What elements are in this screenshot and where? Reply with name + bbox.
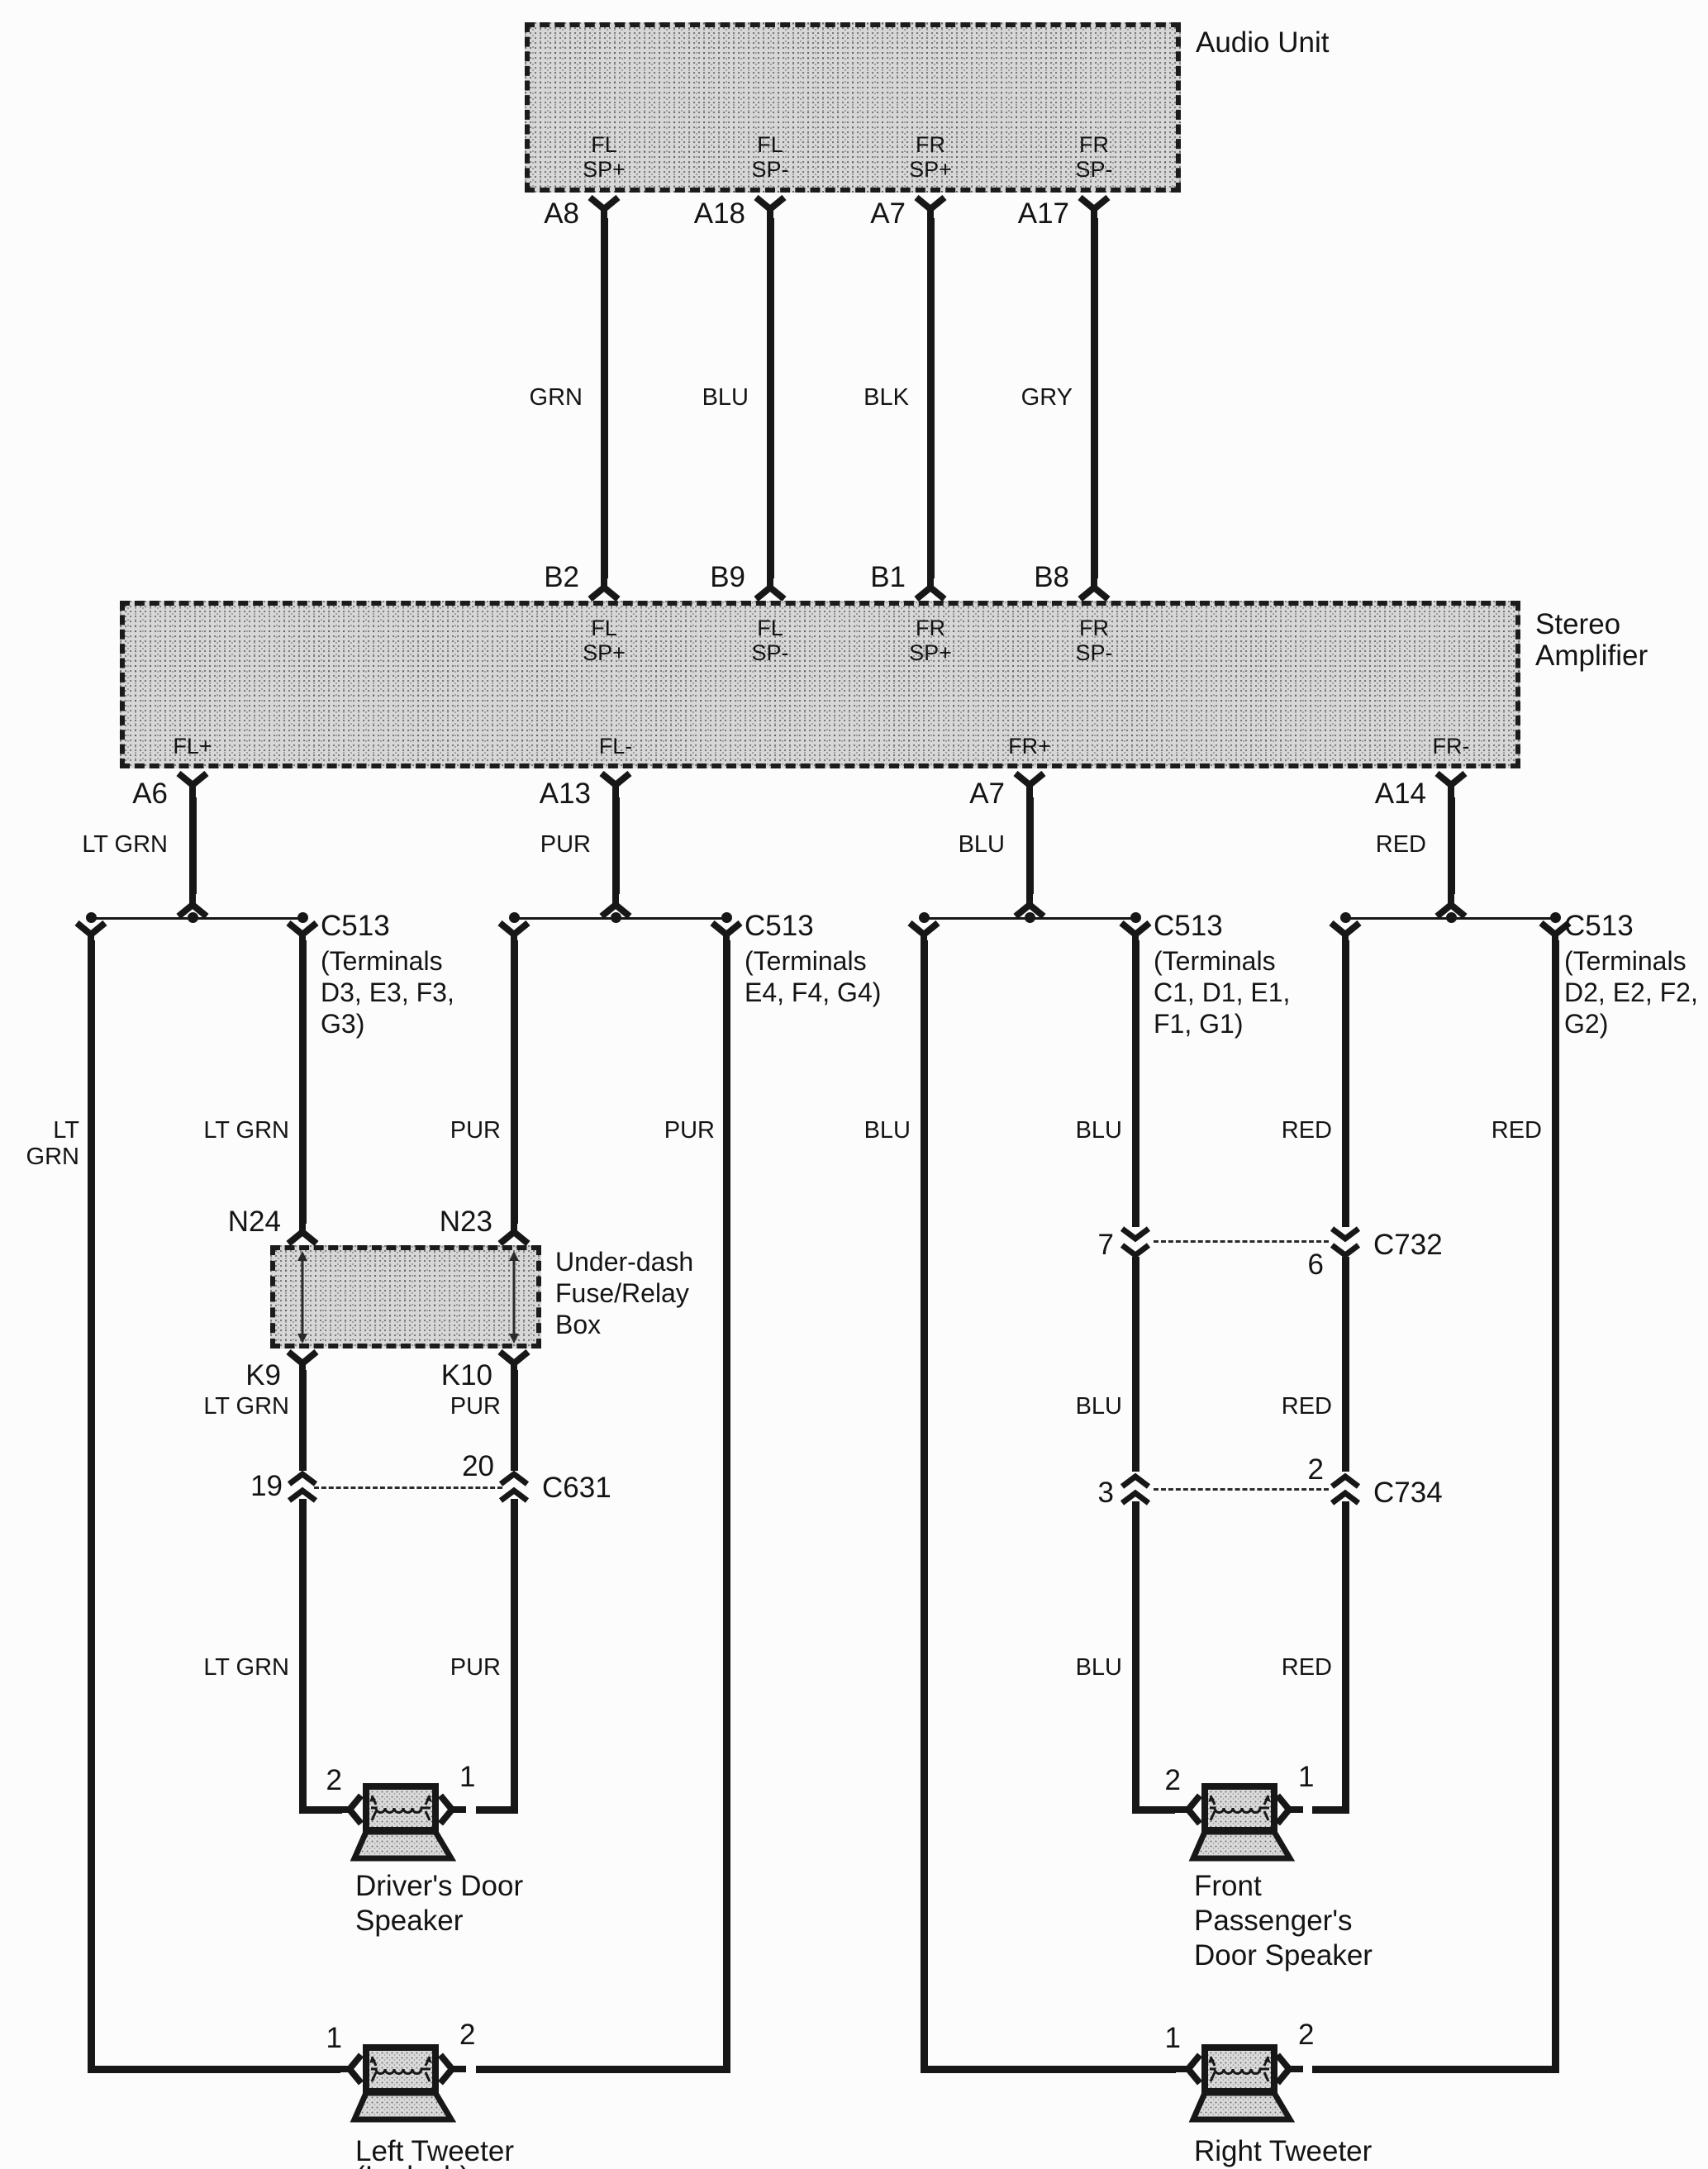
amp-output-pin-fr-plus: FR+ — [988, 734, 1071, 759]
wire-color-grn: GRN — [464, 384, 583, 411]
left-tweeter-pin-2: 2 — [459, 2019, 509, 2051]
wire-red — [1448, 797, 1455, 894]
audio-pin-label-fl-sp-plus: FL SP+ — [554, 132, 654, 182]
terminal-a18: A18 — [623, 198, 745, 230]
fuse-box-through-arrow-icon — [294, 1251, 311, 1344]
wiring-diagram: Audio Unit FL SP+ FL SP- FR SP+ FR SP- A… — [0, 0, 1708, 2169]
pin-fork-icon — [586, 573, 622, 602]
wire-pur-inner — [511, 1499, 518, 1814]
inline-connector-dashed-line — [314, 1486, 502, 1489]
wire-color-label: BLU — [1003, 1654, 1122, 1681]
terminal-n23: N23 — [370, 1206, 492, 1238]
terminal-b9: B9 — [623, 562, 745, 593]
terminal-a13: A13 — [469, 778, 591, 810]
inline-connector-chevron-icon — [1327, 1473, 1363, 1506]
speaker-icon — [1190, 1781, 1293, 1863]
wire-color-red: RED — [1294, 831, 1426, 858]
terminal-a6: A6 — [45, 778, 168, 810]
junction-dot — [1025, 912, 1035, 923]
connector-c513-name-3: C513 — [1154, 911, 1223, 942]
wire-color-blk: BLK — [790, 384, 909, 411]
wire-blu-inner — [1132, 1257, 1139, 1472]
audio-pin-label-fr-sp-minus: FR SP- — [1044, 132, 1144, 182]
terminal-a14: A14 — [1304, 778, 1426, 810]
fuse-box-through-arrow-icon — [506, 1251, 522, 1344]
connector-c513-name-4: C513 — [1564, 911, 1634, 942]
wire-lt-grn-inner — [299, 1370, 307, 1471]
pin-fork-icon — [1433, 771, 1469, 799]
junction-dot — [188, 912, 198, 923]
terminal-a17: A17 — [947, 198, 1069, 230]
wire-lt-grn — [189, 797, 197, 894]
inline-connector-chevron-icon — [1327, 1225, 1363, 1258]
right-tweeter-pin-2: 2 — [1298, 2019, 1348, 2051]
amp-output-pin-fl-plus: FL+ — [151, 734, 234, 759]
wire-blu-inner — [1132, 940, 1139, 1227]
wire-segment — [921, 2066, 1176, 2073]
inline-connector-chevron-icon — [496, 1471, 532, 1504]
wire-pur — [612, 797, 620, 894]
wire-blu — [767, 218, 774, 578]
wire-color-label: PUR — [382, 1117, 501, 1144]
wire-red-inner — [1342, 1257, 1349, 1472]
terminal-k10: K10 — [370, 1360, 492, 1391]
wire-red-inner — [1342, 940, 1349, 1227]
wire-color-label: BLU — [792, 1117, 911, 1144]
pin-fork-icon — [1011, 771, 1048, 799]
wire-color-pur: PUR — [459, 831, 591, 858]
passenger-speaker-pin-2: 2 — [1128, 1765, 1181, 1796]
stereo-amplifier-box — [120, 601, 1520, 768]
pin-fork-icon — [1076, 573, 1112, 602]
wire-color-gry: GRY — [954, 384, 1073, 411]
terminal-a7-amp: A7 — [883, 778, 1005, 810]
wire-color-blu: BLU — [873, 831, 1005, 858]
wire-color-label: LT GRN — [170, 1654, 289, 1681]
connector-c513-terminals-3: (Terminals C1, D1, E1, F1, G1) — [1154, 945, 1290, 1039]
amp-input-pin-label: FL SP+ — [554, 616, 654, 665]
terminal-n24: N24 — [159, 1206, 281, 1238]
wire-color-label: LT GRN — [0, 1117, 79, 1170]
speaker-icon — [351, 1781, 454, 1863]
inline-connector-chevron-icon — [1117, 1473, 1154, 1506]
right-tweeter-pin-1: 1 — [1128, 2023, 1181, 2054]
wire-segment — [1312, 1806, 1349, 1814]
pin-fork-icon — [174, 771, 211, 799]
pin-fork-icon — [496, 1218, 532, 1246]
wire-color-label: LT GRN — [170, 1117, 289, 1144]
pin-fork-icon — [752, 573, 788, 602]
wire-segment — [88, 2066, 340, 2073]
pin-fork-icon — [912, 573, 949, 602]
c732-pin-7: 7 — [1006, 1230, 1114, 1261]
terminal-a7-audio: A7 — [783, 198, 906, 230]
connector-c513-name-2: C513 — [745, 911, 814, 942]
wire-color-lt-grn: LT GRN — [36, 831, 168, 858]
passenger-speaker-pin-1: 1 — [1298, 1762, 1348, 1793]
wire-lt-grn-outer — [88, 940, 95, 2073]
wire-segment — [1132, 1806, 1175, 1814]
wire-pur-outer — [723, 940, 730, 2073]
pin-fork-icon — [284, 1349, 321, 1377]
connector-c732-name: C732 — [1373, 1230, 1443, 1261]
wire-color-label: RED — [1213, 1393, 1332, 1420]
c734-pin-2: 2 — [1216, 1454, 1324, 1486]
wire-segment — [1312, 2066, 1558, 2073]
wire-gry — [1091, 218, 1098, 578]
wire-color-label: PUR — [596, 1117, 715, 1144]
amp-output-pin-fl-minus: FL- — [574, 734, 657, 759]
terminal-b2: B2 — [457, 562, 579, 593]
pin-fork-icon — [597, 771, 634, 799]
wire-segment — [476, 1806, 518, 1814]
amp-output-pin-fr-minus: FR- — [1410, 734, 1492, 759]
connector-c513-name-1: C513 — [321, 911, 390, 942]
wire-color-label: RED — [1423, 1117, 1542, 1144]
pin-fork-icon — [284, 1218, 321, 1246]
inline-connector-chevron-icon — [284, 1471, 321, 1504]
wire-blu-outer — [921, 940, 928, 2073]
c631-pin-20: 20 — [382, 1451, 494, 1482]
inline-connector-dashed-line — [1154, 1240, 1329, 1243]
c631-pin-19: 19 — [170, 1471, 283, 1502]
wire-grn — [601, 218, 608, 578]
driver-speaker-pin-1: 1 — [459, 1762, 509, 1793]
wire-color-label: RED — [1213, 1117, 1332, 1144]
amp-input-pin-label: FL SP- — [721, 616, 820, 665]
under-dash-fuse-relay-box — [270, 1245, 541, 1348]
stereo-amplifier-title: Stereo Amplifier — [1535, 609, 1648, 672]
wire-color-label: RED — [1213, 1654, 1332, 1681]
connector-c513-terminals-2: (Terminals E4, F4, G4) — [745, 945, 881, 1008]
pin-fork-icon — [496, 1349, 532, 1377]
wire-color-label: BLU — [1003, 1393, 1122, 1420]
terminal-a8: A8 — [457, 198, 579, 230]
wire-color-label: PUR — [382, 1654, 501, 1681]
inline-connector-chevron-icon — [1117, 1225, 1154, 1258]
wire-color-label: LT GRN — [170, 1393, 289, 1420]
speaker-icon — [1190, 2042, 1293, 2124]
right-tweeter-label: Right Tweeter — [1194, 2134, 1372, 2169]
wire-red-outer — [1552, 940, 1559, 2073]
amp-input-pin-label: FR SP- — [1044, 616, 1144, 665]
connector-c631-name: C631 — [542, 1472, 611, 1504]
connector-c513-terminals-1: (Terminals D3, E3, F3, G3) — [321, 945, 454, 1039]
terminal-b8: B8 — [947, 562, 1069, 593]
passenger-door-speaker-label: Front Passenger's Door Speaker — [1194, 1869, 1373, 1973]
left-tweeter-sublabel: (In dash) — [355, 2160, 469, 2169]
junction-dot — [611, 912, 621, 923]
wire-pur-inner — [511, 940, 518, 1224]
wire-segment — [476, 2066, 730, 2073]
wire-blu — [1026, 797, 1034, 894]
wire-color-blu: BLU — [630, 384, 749, 411]
wire-color-label: PUR — [382, 1393, 501, 1420]
audio-pin-label-fl-sp-minus: FL SP- — [721, 132, 820, 182]
amp-input-pin-label: FR SP+ — [881, 616, 980, 665]
connector-c513-terminals-4: (Terminals D2, E2, F2, G2) — [1564, 945, 1698, 1039]
fuse-box-title: Under-dash Fuse/Relay Box — [555, 1246, 693, 1340]
inline-connector-dashed-line — [1154, 1488, 1329, 1491]
driver-speaker-pin-2: 2 — [289, 1765, 342, 1796]
audio-unit-title: Audio Unit — [1196, 27, 1329, 59]
wire-pur-inner — [511, 1370, 518, 1471]
c732-pin-6: 6 — [1216, 1249, 1324, 1281]
wire-blk — [927, 218, 935, 578]
junction-dot — [1446, 912, 1457, 923]
wire-lt-grn-inner — [299, 940, 307, 1224]
terminal-k9: K9 — [159, 1360, 281, 1391]
left-tweeter-pin-1: 1 — [289, 2023, 342, 2054]
driver-door-speaker-label: Driver's Door Speaker — [355, 1869, 523, 1938]
audio-pin-label-fr-sp-plus: FR SP+ — [881, 132, 980, 182]
connector-c734-name: C734 — [1373, 1477, 1443, 1509]
c734-pin-3: 3 — [1006, 1477, 1114, 1509]
wire-color-label: BLU — [1003, 1117, 1122, 1144]
terminal-b1: B1 — [783, 562, 906, 593]
speaker-icon — [351, 2042, 454, 2124]
